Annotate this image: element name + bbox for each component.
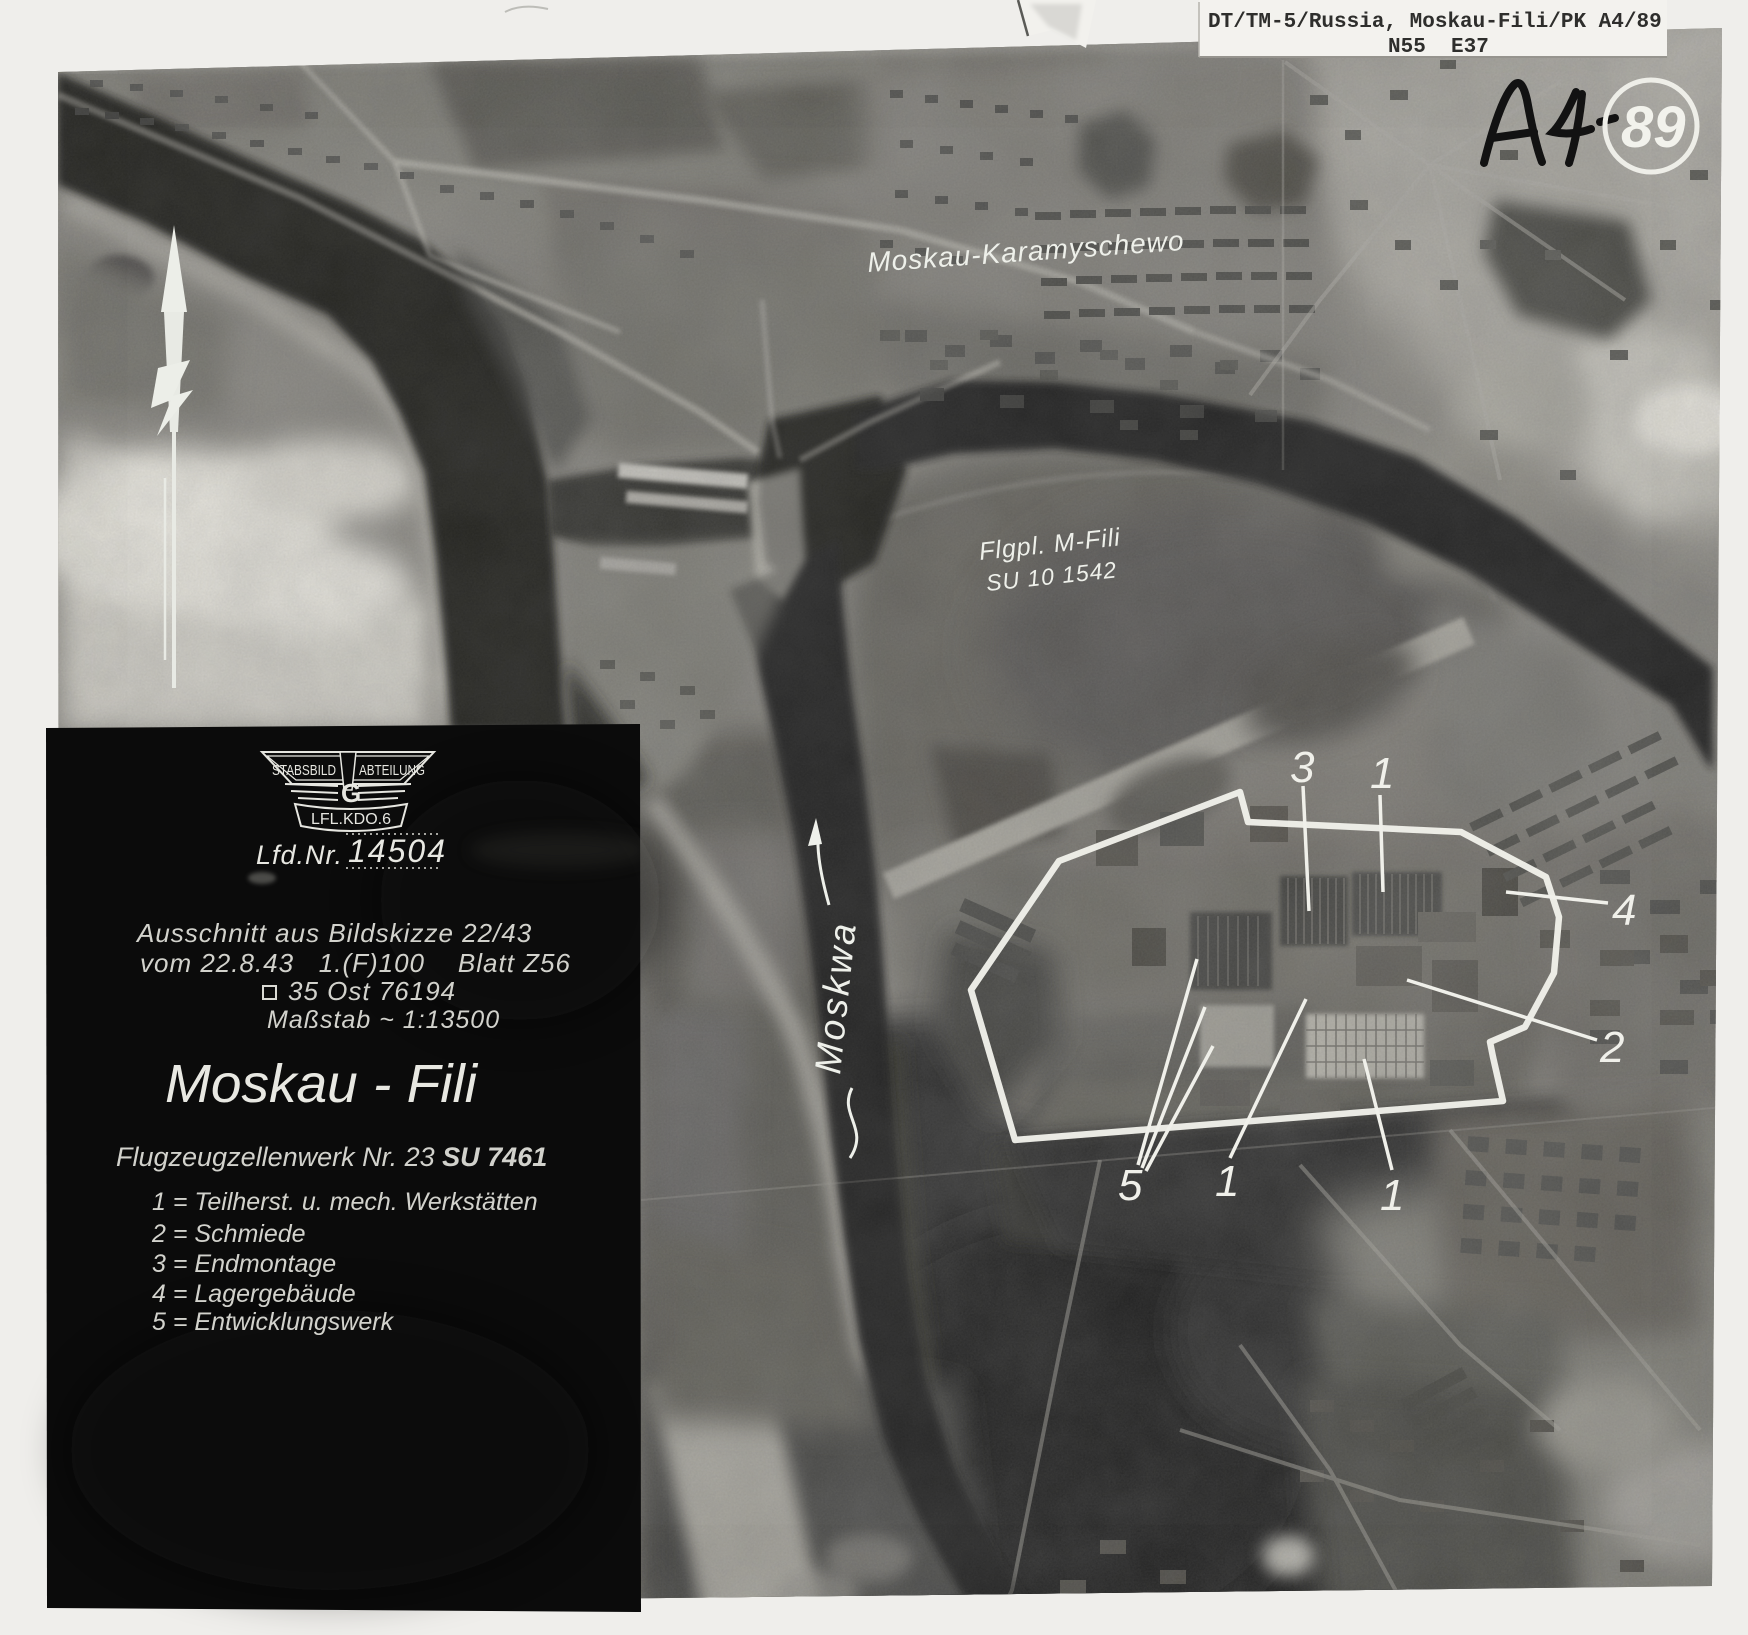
svg-text:1: 1 xyxy=(1215,1157,1239,1206)
svg-text:Lfd.Nr.: Lfd.Nr. xyxy=(256,840,343,870)
svg-text:14504: 14504 xyxy=(348,833,447,869)
svg-text:5 = Entwicklungswerk: 5 = Entwicklungswerk xyxy=(152,1308,395,1336)
svg-text:3 = Endmontage: 3 = Endmontage xyxy=(152,1250,336,1278)
svg-text:3: 3 xyxy=(1290,743,1315,792)
svg-text:N55 E37: N55 E37 xyxy=(1388,36,1489,59)
svg-text:35 Ost 76194: 35 Ost 76194 xyxy=(288,976,456,1006)
svg-text:2 = Schmiede: 2 = Schmiede xyxy=(151,1220,306,1248)
svg-text:5: 5 xyxy=(1118,1161,1143,1210)
svg-text:Flugzeugzellenwerk Nr. 23 SU 7: Flugzeugzellenwerk Nr. 23 SU 7461 xyxy=(116,1142,547,1172)
svg-text:LFL.KDO.6: LFL.KDO.6 xyxy=(311,811,391,828)
svg-text:ABTEILUNG: ABTEILUNG xyxy=(359,762,425,779)
svg-text:Ausschnitt aus Bildskizze 22/4: Ausschnitt aus Bildskizze 22/43 xyxy=(135,918,532,948)
svg-text:1: 1 xyxy=(1370,749,1394,798)
svg-text:Maßstab ~ 1:13500: Maßstab ~ 1:13500 xyxy=(267,1006,500,1034)
svg-text:G: G xyxy=(341,778,361,808)
svg-text:4: 4 xyxy=(1612,886,1636,935)
svg-text:89: 89 xyxy=(1621,95,1686,160)
svg-text:1: 1 xyxy=(1380,1171,1404,1220)
svg-text:Moskau - Fili: Moskau - Fili xyxy=(165,1054,479,1114)
svg-text:1 = Teilherst. u. mech. Werkst: 1 = Teilherst. u. mech. Werkstätten xyxy=(152,1188,538,1216)
svg-text:2: 2 xyxy=(1599,1023,1624,1072)
svg-text:4 = Lagergebäude: 4 = Lagergebäude xyxy=(152,1280,356,1308)
svg-text:vom 22.8.43 1.(F)100 Blat: vom 22.8.43 1.(F)100 Blatt Z56 xyxy=(140,948,571,978)
svg-text:DT/TM-5/Russia, Moskau-Fili/PK: DT/TM-5/Russia, Moskau-Fili/PK A4/89 xyxy=(1208,11,1662,34)
svg-text:STABSBILD: STABSBILD xyxy=(272,762,336,779)
